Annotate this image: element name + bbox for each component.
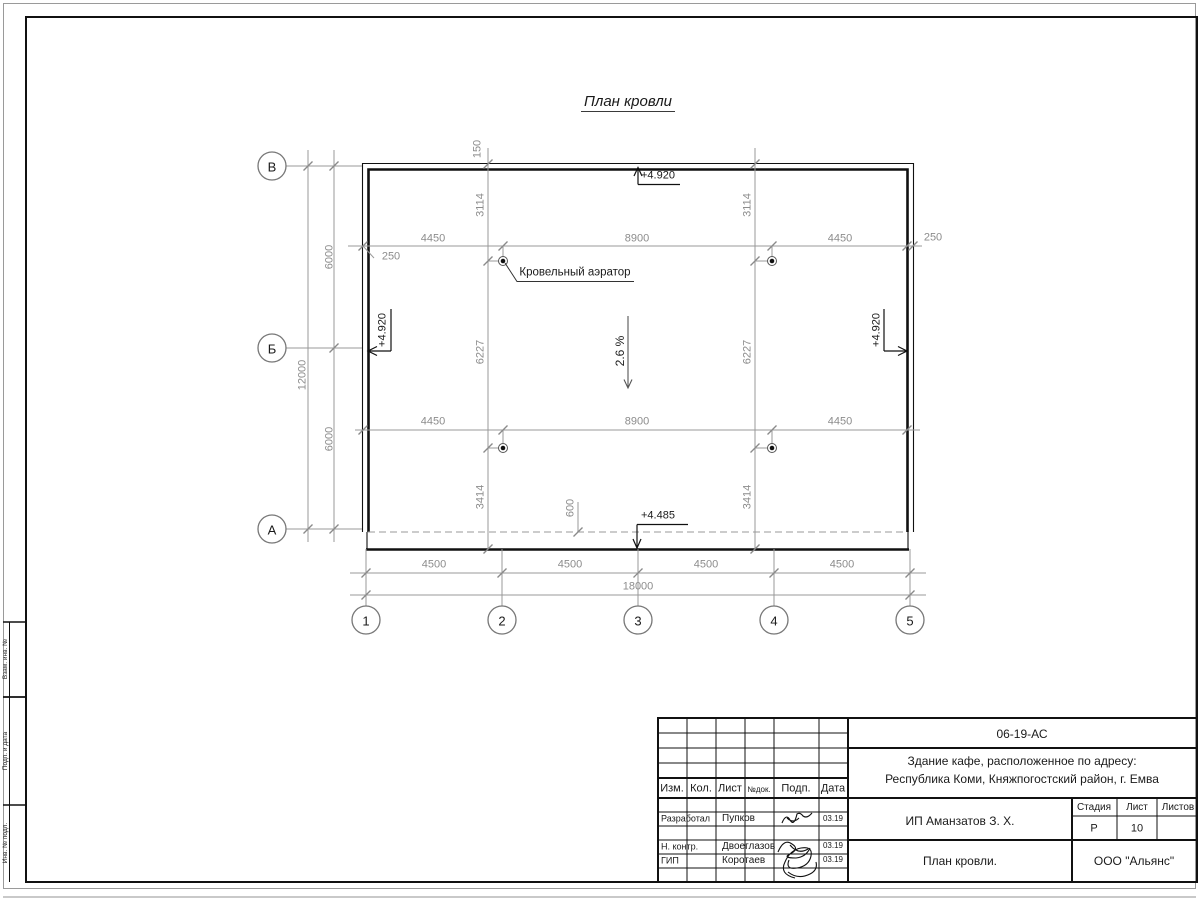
tb-name-gip: Коротаев xyxy=(722,856,765,866)
elevation-label-right: +4.920 xyxy=(872,313,883,347)
tb-header-ndok: №док. xyxy=(747,786,770,794)
sheet-name: План кровли. xyxy=(923,855,997,867)
client-name: ИП Аманзатов З. Х. xyxy=(905,815,1014,827)
signature-developer xyxy=(782,813,812,823)
dim-label: 6227 xyxy=(743,340,754,364)
tb-header-izm: Изм. xyxy=(660,784,684,795)
tb-sheet-label: Лист xyxy=(1126,803,1148,813)
dim-label: 3114 xyxy=(476,193,487,217)
tb-date-ncontrol: 03.19 xyxy=(823,842,843,850)
elevation-label-left: +4.920 xyxy=(378,313,389,347)
tb-date-gip: 03.19 xyxy=(823,856,843,864)
tb-header-data: Дата xyxy=(821,784,845,795)
object-name-line1: Здание кафе, расположенное по адресу: xyxy=(907,755,1136,767)
axis-number-4: 4 xyxy=(770,615,777,628)
dimension-ticks xyxy=(304,160,918,600)
dim-label: 250 xyxy=(382,252,400,263)
axis-letter-v: В xyxy=(268,161,277,174)
axis-number-3: 3 xyxy=(634,615,641,628)
dim-label: 12000 xyxy=(298,360,309,391)
dim-label: 3114 xyxy=(743,193,754,217)
dim-label: 4450 xyxy=(828,234,852,245)
tb-role-ncontrol: Н. контр. xyxy=(661,843,698,852)
roof-outline xyxy=(363,164,914,550)
signature-gip xyxy=(783,848,816,878)
tb-header-podp: Подп. xyxy=(781,784,810,795)
dim-label: 250 xyxy=(924,233,942,244)
tb-role-developer: Разработал xyxy=(661,815,710,824)
tb-header-list: Лист xyxy=(718,784,742,795)
axis-number-5: 5 xyxy=(906,615,913,628)
dim-label: 3414 xyxy=(743,485,754,509)
elevation-marks xyxy=(368,168,907,549)
object-name-line2: Республика Коми, Княжпогостский район, г… xyxy=(885,773,1159,785)
dim-label: 600 xyxy=(566,499,577,517)
margin-label-podp: Подп. и дата xyxy=(3,732,10,770)
dim-label: 6000 xyxy=(325,427,336,451)
elevation-label-bottom: +4.485 xyxy=(641,511,675,522)
dim-label: 3414 xyxy=(476,485,487,509)
axis-number-1: 1 xyxy=(362,615,369,628)
company-name: ООО "Альянс" xyxy=(1094,855,1174,867)
dim-label: 8900 xyxy=(625,417,649,428)
dim-label: 4450 xyxy=(828,417,852,428)
drawing-sheet: План кровли В Б А 1 2 3 4 5 4450 8900 44… xyxy=(0,0,1200,900)
tb-name-developer: Пупков xyxy=(722,814,755,824)
doc-number: 06-19-АС xyxy=(996,728,1047,740)
dim-label: 4450 xyxy=(421,234,445,245)
tb-sheets-label: Листов xyxy=(1162,803,1195,813)
dim-label: 8900 xyxy=(625,234,649,245)
dim-label: 4500 xyxy=(694,560,718,571)
axis-bubbles xyxy=(258,152,924,634)
margin-label-vzam: Взам. инв. № xyxy=(3,639,10,679)
tb-stage-label: Стадия xyxy=(1077,803,1111,813)
elevation-label-top: +4.920 xyxy=(641,171,675,182)
axis-letter-a: А xyxy=(268,524,277,537)
margin-label-inv: Инв. № подл. xyxy=(3,823,10,864)
dim-label: 18000 xyxy=(623,582,654,593)
tb-header-kol: Кол. xyxy=(690,784,712,795)
tb-name-ncontrol: Двоеглазов xyxy=(722,842,775,852)
dim-label: 6000 xyxy=(325,245,336,269)
drawing-title: План кровли xyxy=(581,94,675,112)
dim-label: 4500 xyxy=(422,560,446,571)
tb-sheet-value: 10 xyxy=(1131,824,1143,835)
tb-role-gip: ГИП xyxy=(661,857,679,866)
dim-label: 4500 xyxy=(830,560,854,571)
axis-number-2: 2 xyxy=(498,615,505,628)
dim-label: 150 xyxy=(473,140,484,158)
axis-letter-b: Б xyxy=(268,343,277,356)
tb-date-developer: 03.19 xyxy=(823,815,843,823)
dim-label: 6227 xyxy=(476,340,487,364)
dim-label: 4500 xyxy=(558,560,582,571)
dimension-lines xyxy=(286,148,926,607)
dim-label: 4450 xyxy=(421,417,445,428)
slope-label: 2.6 % xyxy=(614,336,626,367)
tb-stage-value: Р xyxy=(1090,824,1097,835)
aerator-label: Кровельный аэратор xyxy=(519,267,630,279)
